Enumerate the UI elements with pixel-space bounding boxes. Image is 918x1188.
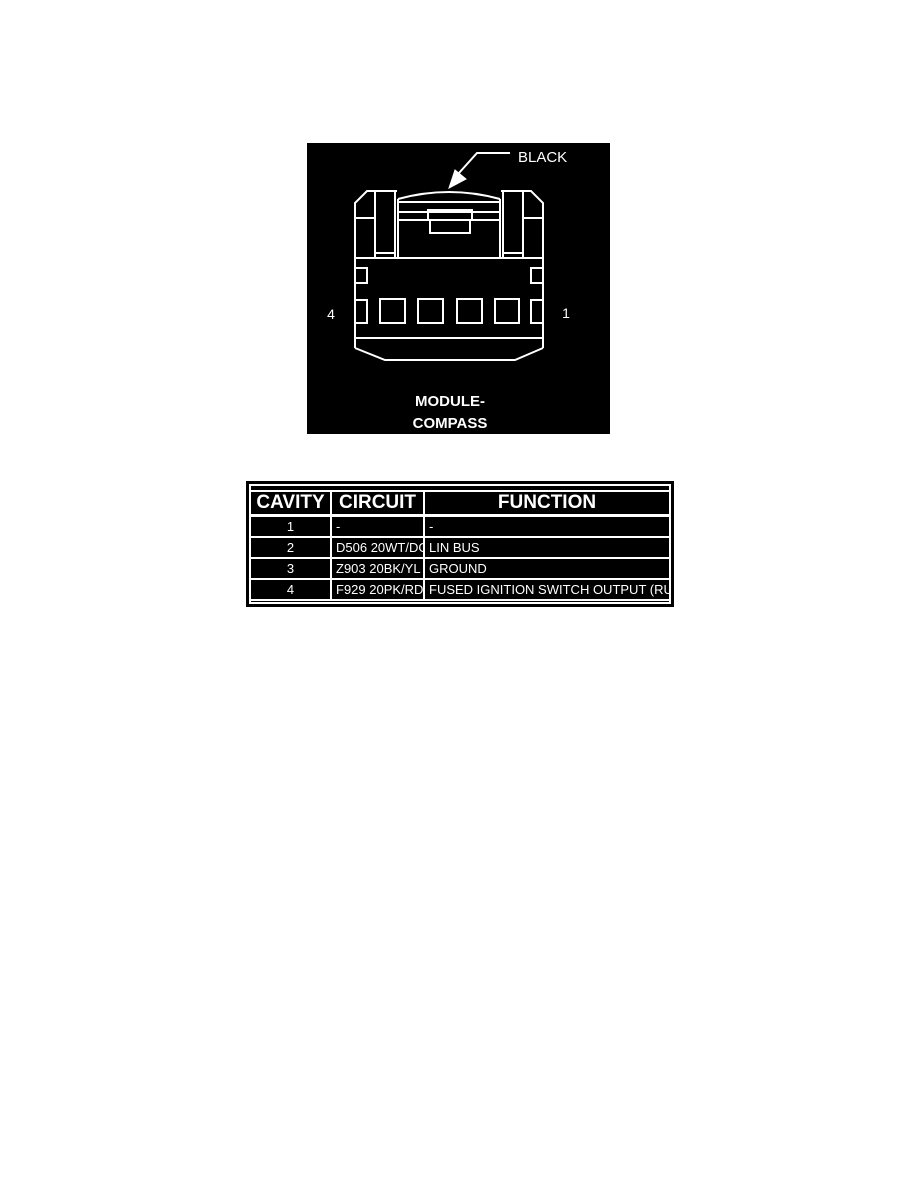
circuit-value: Z903 20BK/YL bbox=[331, 558, 424, 579]
header-function: FUNCTION bbox=[424, 491, 669, 516]
cavity-value: 1 bbox=[251, 516, 331, 538]
connector-caption-line2: COMPASS bbox=[413, 415, 488, 432]
table-row: 1 - - bbox=[251, 516, 669, 538]
connector-caption-line1: MODULE- bbox=[415, 393, 485, 410]
cavity-value: 2 bbox=[251, 537, 331, 558]
table-row: 4 F929 20PK/RD FUSED IGNITION SWITCH OUT… bbox=[251, 579, 669, 600]
right-wall-slot-lower bbox=[531, 300, 543, 323]
pinout-table-border: CAVITY CIRCUIT FUNCTION 1 - - 2 D506 20W… bbox=[249, 484, 671, 604]
connector-outline-bottom bbox=[355, 348, 543, 360]
connector-drawing: BLACK 4 1 MODULE- COMPASS bbox=[307, 143, 610, 434]
circuit-value: D506 20WT/DG bbox=[331, 537, 424, 558]
function-value: GROUND bbox=[424, 558, 669, 579]
cavity-3 bbox=[418, 299, 443, 323]
cavity-1 bbox=[495, 299, 519, 323]
header-circuit: CIRCUIT bbox=[331, 491, 424, 516]
table-row: 2 D506 20WT/DG LIN BUS bbox=[251, 537, 669, 558]
cavity-2 bbox=[457, 299, 482, 323]
pinout-table: CAVITY CIRCUIT FUNCTION 1 - - 2 D506 20W… bbox=[251, 490, 669, 601]
table-row: 3 Z903 20BK/YL GROUND bbox=[251, 558, 669, 579]
right-wall-slot-upper bbox=[531, 268, 543, 283]
callout-leader-line bbox=[459, 153, 510, 173]
connector-color-label: BLACK bbox=[518, 149, 567, 166]
pin-4-label: 4 bbox=[327, 306, 335, 322]
pin-1-label: 1 bbox=[562, 305, 570, 321]
connector-diagram: BLACK 4 1 MODULE- COMPASS bbox=[307, 143, 610, 434]
connector-latch-arch bbox=[398, 192, 500, 199]
circuit-value: - bbox=[331, 516, 424, 538]
cavity-4 bbox=[380, 299, 405, 323]
function-value: - bbox=[424, 516, 669, 538]
header-cavity: CAVITY bbox=[251, 491, 331, 516]
table-header-row: CAVITY CIRCUIT FUNCTION bbox=[251, 491, 669, 516]
latch-tab-lower bbox=[430, 220, 470, 233]
pinout-table-frame: CAVITY CIRCUIT FUNCTION 1 - - 2 D506 20W… bbox=[246, 481, 674, 607]
cavity-value: 4 bbox=[251, 579, 331, 600]
manual-page: BLACK 4 1 MODULE- COMPASS CAVITY CIRCUIT… bbox=[0, 0, 918, 1188]
cavity-value: 3 bbox=[251, 558, 331, 579]
arrowhead-icon bbox=[449, 170, 466, 188]
function-value: LIN BUS bbox=[424, 537, 669, 558]
function-value: FUSED IGNITION SWITCH OUTPUT (RUN) bbox=[424, 579, 669, 600]
left-wall-slot-upper bbox=[355, 268, 367, 283]
left-wall-slot-lower bbox=[355, 300, 367, 323]
circuit-value: F929 20PK/RD bbox=[331, 579, 424, 600]
